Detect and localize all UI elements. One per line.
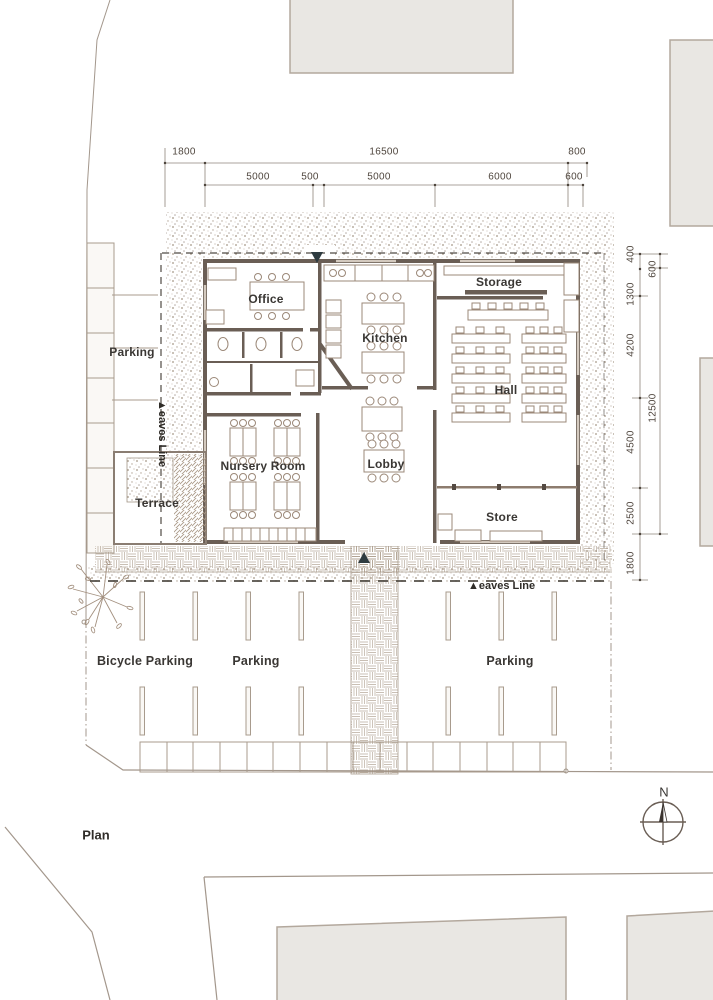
eaves-line-label-west: ▲eaves Line	[156, 400, 168, 467]
north-compass-icon	[640, 799, 686, 845]
dim-right-4500: 4500	[626, 430, 637, 453]
site-label-parking-center: Parking	[232, 654, 279, 668]
dim-right-1800: 1800	[626, 551, 637, 574]
site-label-bicycle-parking: Bicycle Parking	[97, 654, 193, 668]
dim-right-600: 600	[648, 260, 659, 278]
room-label-nursery: Nursery Room	[220, 459, 305, 473]
room-label-store: Store	[486, 510, 518, 524]
room-label-kitchen: Kitchen	[362, 331, 407, 345]
dim-right-400: 400	[626, 245, 637, 263]
dim-right-12500: 12500	[648, 393, 659, 422]
dim-right-2500: 2500	[626, 501, 637, 524]
dim-top-1800: 1800	[172, 147, 195, 158]
dim-top2-5000a: 5000	[246, 172, 269, 183]
room-label-lobby: Lobby	[368, 457, 405, 471]
room-label-office: Office	[248, 292, 283, 306]
north-label: N	[659, 785, 668, 800]
plan-drawing	[0, 0, 713, 1000]
room-label-terrace: Terrace	[135, 496, 179, 510]
dim-top2-500: 500	[301, 172, 319, 183]
room-label-storage: Storage	[476, 275, 522, 289]
dim-right-1300: 1300	[626, 282, 637, 305]
site-label-parking-east: Parking	[486, 654, 533, 668]
page-title: Plan	[82, 828, 109, 843]
room-label-hall: Hall	[495, 383, 518, 397]
dim-top-16500: 16500	[369, 147, 398, 158]
eaves-line-label-south: ▲eaves Line	[468, 580, 535, 592]
dim-top2-600: 600	[565, 172, 583, 183]
room-label-parking-west: Parking	[109, 345, 154, 359]
dim-right-4200: 4200	[626, 333, 637, 356]
dim-top-800: 800	[568, 147, 586, 158]
dim-top2-6000: 6000	[488, 172, 511, 183]
dim-top2-5000b: 5000	[367, 172, 390, 183]
floor-plan-canvas: Office Kitchen Storage Hall Parking Nurs…	[0, 0, 713, 1000]
